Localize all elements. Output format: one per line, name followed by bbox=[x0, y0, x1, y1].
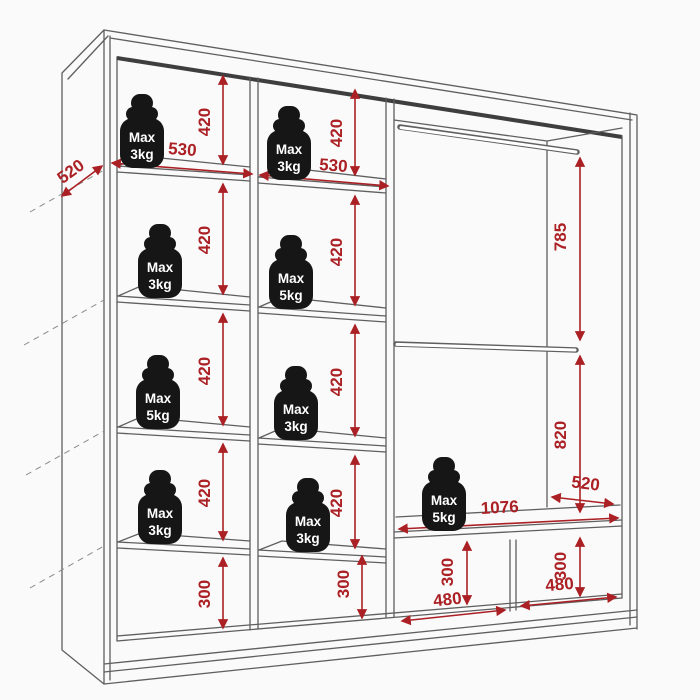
dim-column1-cell5-label: 300 bbox=[195, 580, 214, 608]
dim-column1-cell1-label: 420 bbox=[195, 108, 214, 136]
weight-icon-column1-cell3: Max 5kg bbox=[136, 355, 180, 429]
wardrobe-dimension-diagram: 520 530 530 420 420 420 420 300 bbox=[0, 0, 700, 700]
lower-hanging-rod bbox=[396, 344, 576, 350]
weight-icon-column1-cell2: Max 3kg bbox=[138, 224, 182, 298]
weight-label-line2: 3kg bbox=[296, 531, 319, 546]
weights-layer: Max 3kg Max 3kg Max 5kg Max 3kg Max 3kg … bbox=[120, 94, 466, 552]
dim-compartment2-width-label: 480 bbox=[545, 574, 575, 595]
dim-column2-cell5: 300 bbox=[334, 556, 362, 618]
weight-label-line1: Max bbox=[276, 142, 303, 157]
dim-column1-width-label: 530 bbox=[168, 139, 198, 160]
dim-side-depth-label: 520 bbox=[54, 156, 88, 188]
top-panel bbox=[104, 30, 637, 120]
dim-column2-width-label: 530 bbox=[319, 155, 349, 176]
hidden-shelf-lines bbox=[24, 170, 104, 588]
dim-column1-cell3: 420 bbox=[195, 314, 223, 425]
top-panel-shadow bbox=[117, 58, 622, 137]
weight-icon-column2-cell2: Max 5kg bbox=[269, 235, 313, 309]
dim-column1-cell4-label: 420 bbox=[195, 479, 214, 507]
dim-column2-cell3-label: 420 bbox=[327, 368, 346, 396]
dim-column2-cell1-label: 420 bbox=[327, 119, 346, 147]
weight-icon-column1-cell1: Max 3kg bbox=[120, 94, 164, 168]
dim-shelf-depth: 520 bbox=[552, 472, 613, 504]
dim-shelf-depth-label: 520 bbox=[570, 472, 600, 494]
weight-icon-shelf: Max 5kg bbox=[422, 457, 466, 531]
dim-column2-cell3: 420 bbox=[327, 325, 355, 436]
weight-icon-column1-cell4: Max 3kg bbox=[138, 470, 182, 544]
dim-lower-rod-height-label: 820 bbox=[551, 421, 570, 449]
weight-label-line1: Max bbox=[147, 260, 174, 275]
base-plinth bbox=[104, 610, 637, 684]
weight-label-line2: 3kg bbox=[148, 277, 171, 292]
hanging-section-structure bbox=[394, 120, 622, 611]
weight-label-line2: 3kg bbox=[148, 523, 171, 538]
dim-column2-cell4-label: 420 bbox=[327, 489, 346, 517]
dim-column2-cell5-label: 300 bbox=[334, 570, 353, 598]
dim-column1-cell5: 300 bbox=[195, 558, 223, 628]
weight-label-line1: Max bbox=[129, 130, 156, 145]
weight-icon-column2-cell1: Max 3kg bbox=[267, 106, 311, 180]
dim-column1-cell2: 420 bbox=[195, 184, 223, 294]
weight-label-line1: Max bbox=[295, 514, 322, 529]
left-side-panel bbox=[62, 30, 117, 684]
dim-column1-cell3-label: 420 bbox=[195, 357, 214, 385]
weight-label-line2: 5kg bbox=[432, 510, 455, 525]
dim-compartment1-width-label: 480 bbox=[432, 589, 462, 611]
dim-upper-rod-height: 785 bbox=[551, 158, 580, 340]
weight-label-line2: 3kg bbox=[277, 159, 300, 174]
weight-label-line1: Max bbox=[147, 506, 174, 521]
weight-icon-column2-cell3: Max 3kg bbox=[274, 366, 318, 440]
weight-label-line1: Max bbox=[431, 493, 458, 508]
dim-column2-cell2-label: 420 bbox=[327, 238, 346, 266]
dim-upper-rod-height-label: 785 bbox=[551, 223, 570, 251]
dim-compartment1-height-label: 300 bbox=[438, 558, 457, 586]
dim-shelf-width-label: 1076 bbox=[480, 497, 519, 518]
weight-icon-column2-cell4: Max 3kg bbox=[286, 478, 330, 552]
weight-label-line2: 5kg bbox=[279, 288, 302, 303]
dim-side-depth: 520 bbox=[54, 156, 102, 196]
weight-label-line1: Max bbox=[278, 271, 305, 286]
column1-shelves bbox=[117, 156, 250, 555]
weight-label-line2: 3kg bbox=[130, 147, 153, 162]
dim-column1-cell2-label: 420 bbox=[195, 226, 214, 254]
weight-label-line1: Max bbox=[283, 402, 310, 417]
bottom-floor bbox=[117, 594, 622, 641]
weight-label-line2: 3kg bbox=[284, 419, 307, 434]
diagram-canvas: 520 530 530 420 420 420 420 300 bbox=[0, 0, 700, 700]
dim-column2-cell4: 420 bbox=[327, 456, 355, 548]
dim-column2-cell2: 420 bbox=[327, 196, 355, 305]
right-side-panel bbox=[622, 113, 637, 629]
upper-hanging-rod bbox=[400, 127, 577, 152]
dim-column1-cell1: 420 bbox=[195, 76, 223, 164]
weight-label-line1: Max bbox=[145, 391, 172, 406]
weight-label-line2: 5kg bbox=[146, 408, 169, 423]
dim-column1-cell4: 420 bbox=[195, 444, 223, 540]
